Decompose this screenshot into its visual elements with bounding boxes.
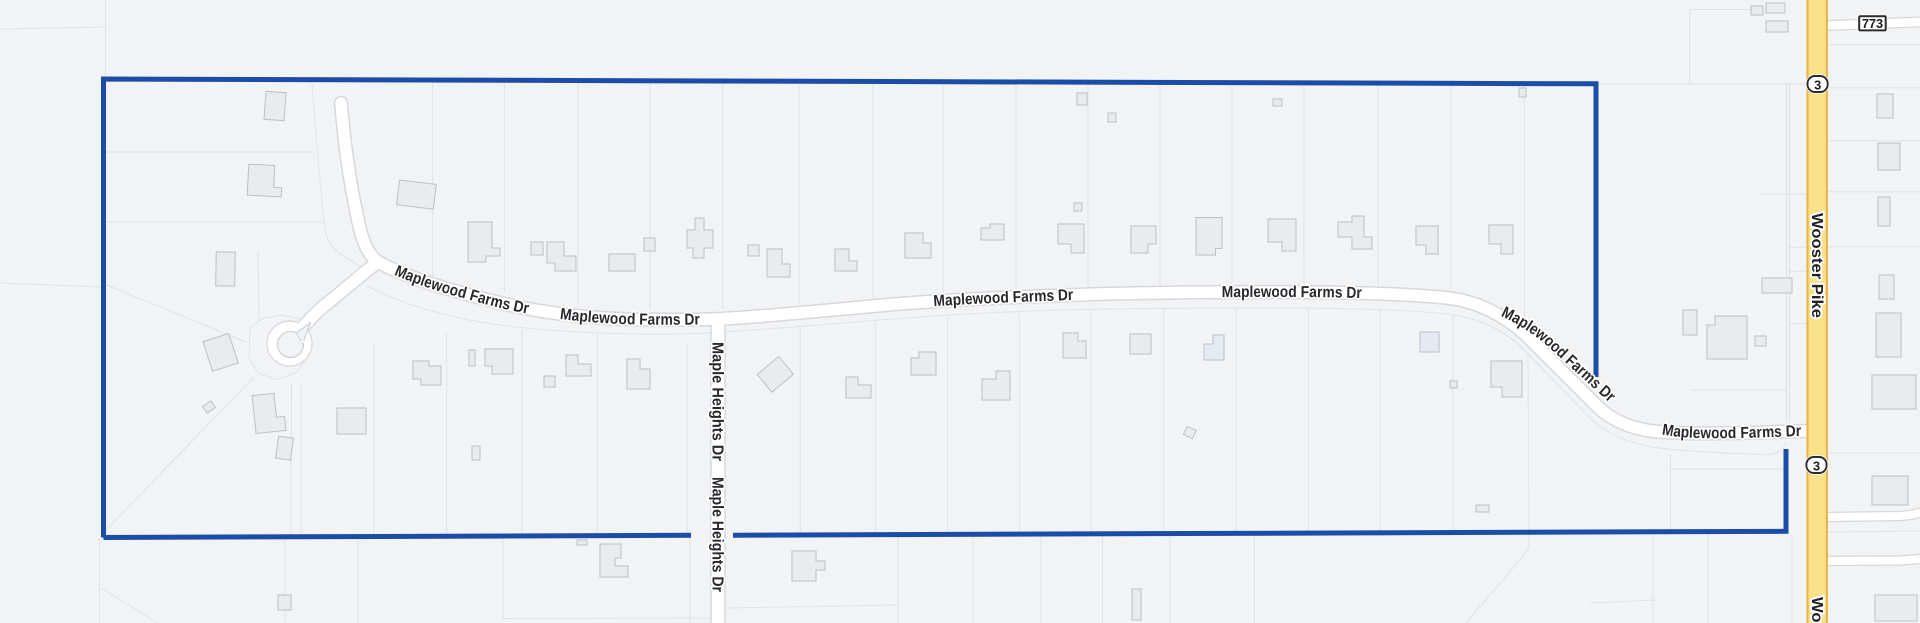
svg-text:773: 773: [1862, 16, 1883, 31]
svg-text:Wooster Pike: Wooster Pike: [1808, 213, 1825, 318]
svg-text:Maple Heights Dr: Maple Heights Dr: [709, 342, 726, 461]
svg-text:3: 3: [1813, 458, 1820, 473]
svg-text:Maplewood Farms Dr: Maplewood Farms Dr: [1222, 284, 1362, 302]
svg-text:Wooster Pike: Wooster Pike: [1808, 597, 1825, 623]
svg-text:3: 3: [1814, 77, 1821, 92]
svg-text:Maple Heights Dr: Maple Heights Dr: [709, 477, 726, 592]
